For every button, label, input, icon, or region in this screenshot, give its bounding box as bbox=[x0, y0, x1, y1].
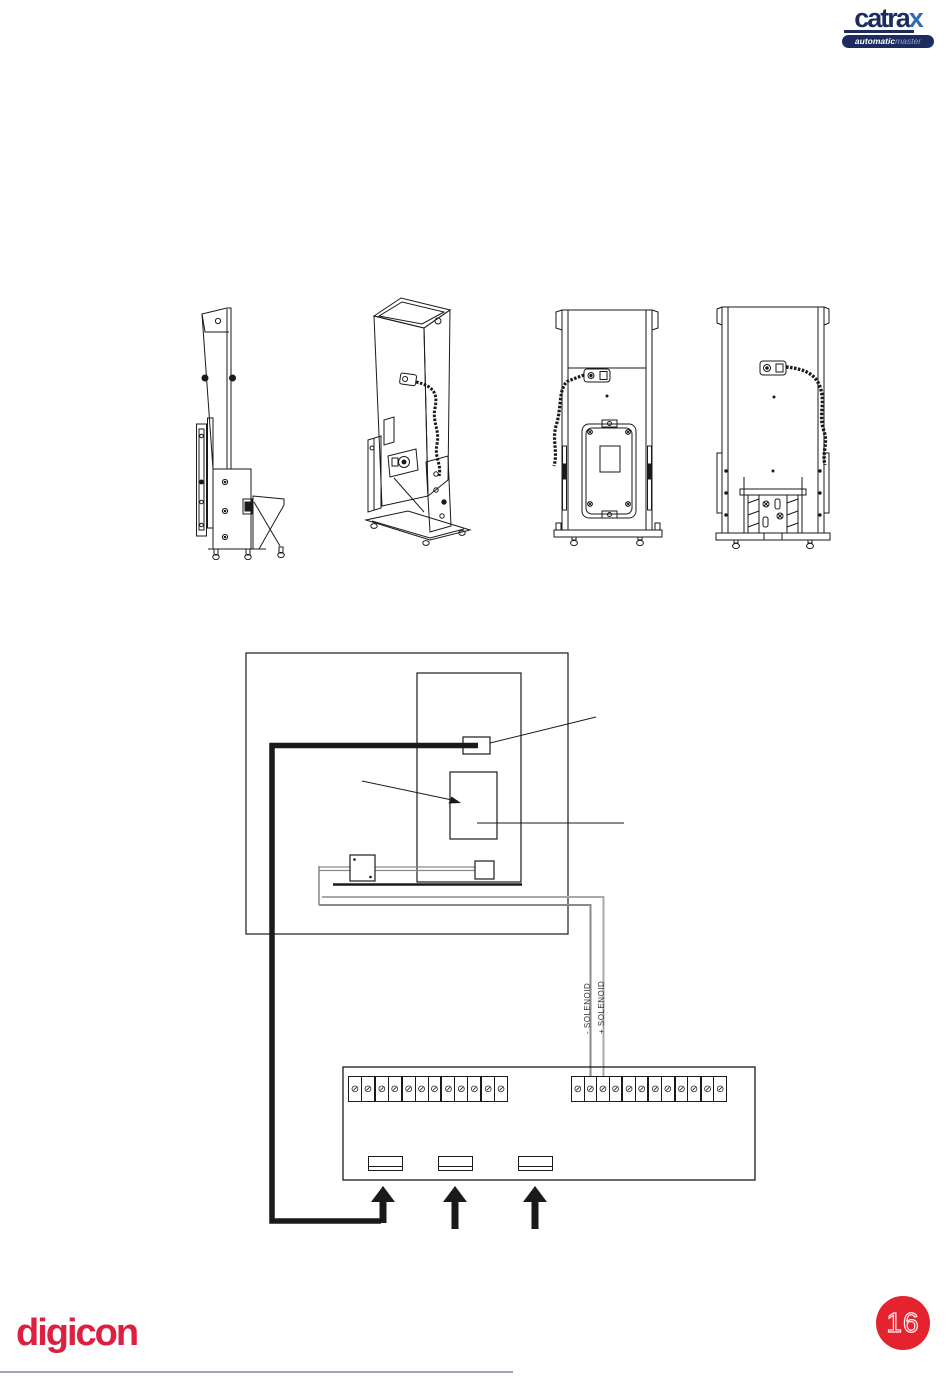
terminal-screw: ⊘ bbox=[662, 1077, 676, 1101]
terminal-screw: ⊘ bbox=[455, 1077, 468, 1101]
page-number-badge: 16 bbox=[876, 1296, 930, 1350]
enclosure-outline bbox=[246, 653, 568, 934]
callout-arrow-line bbox=[362, 781, 452, 800]
terminal-screw: ⊘ bbox=[468, 1077, 482, 1101]
terminal-screw: ⊘ bbox=[636, 1077, 650, 1101]
terminal-screw: ⊘ bbox=[403, 1077, 416, 1101]
connector-footprint-3 bbox=[518, 1156, 553, 1171]
terminal-screw: ⊘ bbox=[623, 1077, 636, 1101]
solenoid-wires bbox=[319, 866, 604, 1079]
solenoid-plus-label: + SOLENOID bbox=[597, 981, 606, 1034]
arrow-up-1 bbox=[371, 1186, 395, 1223]
terminal-screw: ⊘ bbox=[349, 1077, 362, 1101]
terminal-screw: ⊘ bbox=[702, 1077, 715, 1101]
terminal-screw: ⊘ bbox=[649, 1077, 662, 1101]
terminal-strip-left: ⊘⊘⊘⊘⊘⊘⊘⊘⊘⊘⊘⊘ bbox=[348, 1076, 508, 1102]
main-wire bbox=[272, 746, 478, 1222]
connector-footprint-2 bbox=[438, 1156, 473, 1171]
solenoid-minus-wire bbox=[319, 905, 591, 1079]
terminal-screw: ⊘ bbox=[442, 1077, 455, 1101]
solenoid-box bbox=[450, 772, 497, 839]
connector-footprint-1 bbox=[368, 1156, 403, 1171]
terminal-screw: ⊘ bbox=[610, 1077, 624, 1101]
terminal-screw: ⊘ bbox=[714, 1077, 726, 1101]
arrow-up-3 bbox=[523, 1186, 547, 1229]
terminal-screw: ⊘ bbox=[482, 1077, 495, 1101]
terminal-screw: ⊘ bbox=[572, 1077, 585, 1101]
digicon-logo: digicon bbox=[16, 1312, 137, 1355]
sensor-box bbox=[475, 861, 494, 879]
arrow-up-2 bbox=[443, 1186, 467, 1229]
terminal-screw: ⊘ bbox=[416, 1077, 429, 1101]
terminal-screw: ⊘ bbox=[688, 1077, 702, 1101]
footer-rule bbox=[0, 1371, 513, 1373]
callout-line-top bbox=[490, 717, 596, 743]
solenoid-plus-wire bbox=[322, 897, 604, 1079]
terminal-screw: ⊘ bbox=[389, 1077, 403, 1101]
manual-page: catrax automaticmaster bbox=[0, 0, 950, 1379]
page-number: 16 bbox=[886, 1307, 919, 1339]
connector-slot bbox=[369, 1166, 402, 1167]
terminal-screw: ⊘ bbox=[376, 1077, 389, 1101]
terminal-screw: ⊘ bbox=[676, 1077, 689, 1101]
wiring-diagram: - SOLENOID + SOLENOID bbox=[0, 0, 950, 1379]
terminal-screw: ⊘ bbox=[362, 1077, 376, 1101]
terminal-screw: ⊘ bbox=[429, 1077, 443, 1101]
terminal-screw: ⊘ bbox=[495, 1077, 507, 1101]
connector-slot bbox=[439, 1166, 472, 1167]
solenoid-minus-label: - SOLENOID bbox=[583, 983, 592, 1034]
terminal-screw: ⊘ bbox=[585, 1077, 598, 1101]
terminal-strip-right: ⊘⊘⊘⊘⊘⊘⊘⊘⊘⊘⊘⊘ bbox=[571, 1076, 727, 1102]
terminal-screw: ⊘ bbox=[597, 1077, 610, 1101]
connector-slot bbox=[519, 1166, 552, 1167]
